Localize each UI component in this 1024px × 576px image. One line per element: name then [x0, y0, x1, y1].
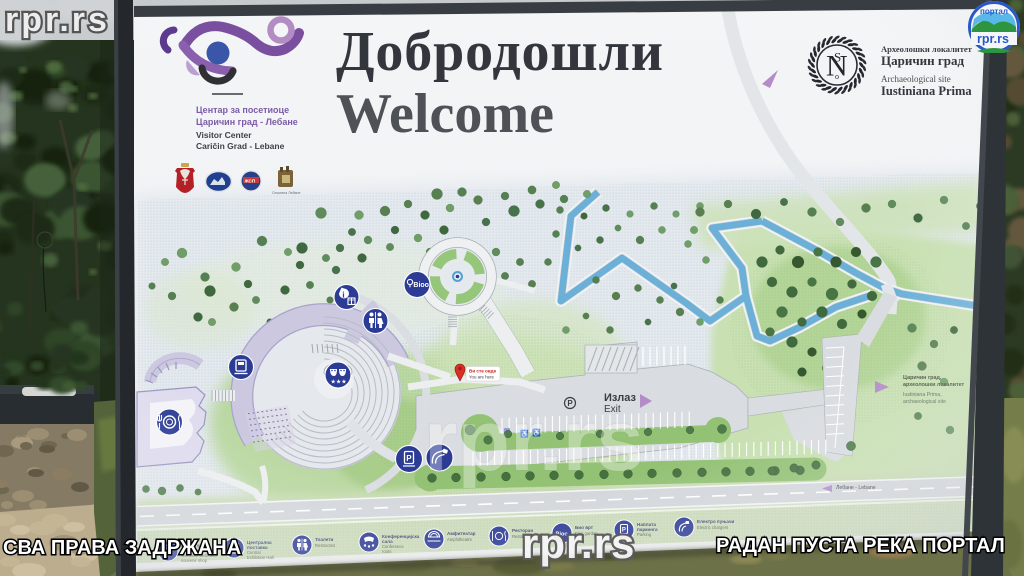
svg-text:S: S: [834, 50, 841, 65]
svg-text:Општина Лебане: Општина Лебане: [272, 191, 301, 195]
svg-text:rpr.rs: rpr.rs: [424, 393, 644, 489]
svg-text:Visitor Center: Visitor Center: [196, 130, 252, 140]
svg-text:Welcome: Welcome: [336, 83, 554, 145]
svg-text:Царичин град - Лебане: Царичин град - Лебане: [196, 117, 298, 127]
svg-text:ЖСП: ЖСП: [244, 178, 256, 183]
svg-text:портал: портал: [980, 7, 1008, 16]
svg-text:rpr.rs: rpr.rs: [522, 520, 635, 567]
svg-text:Iustiniana Prima: Iustiniana Prima: [881, 84, 972, 98]
svg-text:Archaeological site: Archaeological site: [881, 74, 951, 84]
svg-text:СВА ПРАВА ЗАДРЖАНА: СВА ПРАВА ЗАДРЖАНА: [3, 537, 241, 559]
svg-text:Центар за посетиоце: Центар за посетиоце: [196, 105, 289, 115]
svg-text:rpr.rs: rpr.rs: [5, 1, 110, 39]
svg-text:Царичин град: Царичин град: [881, 53, 965, 68]
svg-text:Добродошли: Добродошли: [336, 21, 663, 83]
svg-text:РАДАН ПУСТА РЕКА ПОРТАЛ: РАДАН ПУСТА РЕКА ПОРТАЛ: [716, 535, 1005, 557]
svg-text:rpr.rs: rpr.rs: [977, 32, 1009, 46]
svg-text:Caričin Grad - Lebane: Caričin Grad - Lebane: [196, 141, 285, 151]
svg-text:o: o: [835, 72, 839, 81]
